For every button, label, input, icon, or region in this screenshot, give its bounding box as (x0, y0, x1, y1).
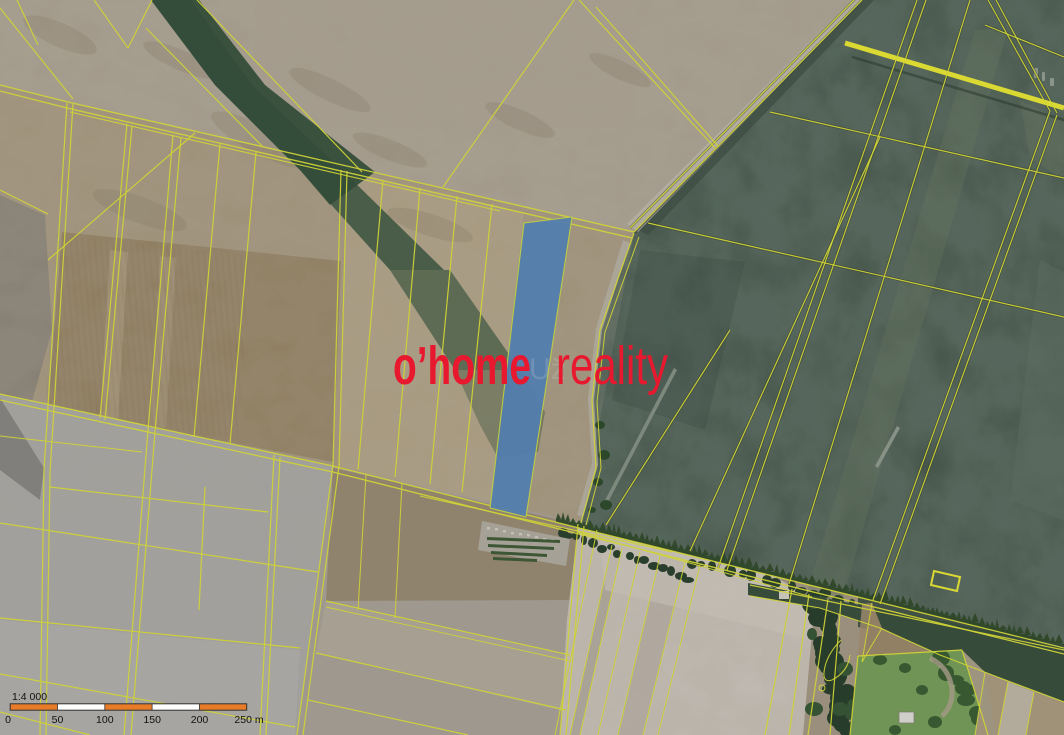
svg-text:o’home: o’home (393, 336, 531, 396)
svg-text:reality: reality (556, 336, 668, 396)
svg-text:50: 50 (52, 714, 64, 726)
svg-text:100: 100 (96, 714, 114, 726)
svg-text:250 m: 250 m (234, 714, 263, 726)
svg-text:0: 0 (5, 714, 11, 726)
svg-text:200: 200 (191, 714, 209, 726)
svg-text:1:4 000: 1:4 000 (12, 691, 47, 703)
svg-text:150: 150 (143, 714, 161, 726)
